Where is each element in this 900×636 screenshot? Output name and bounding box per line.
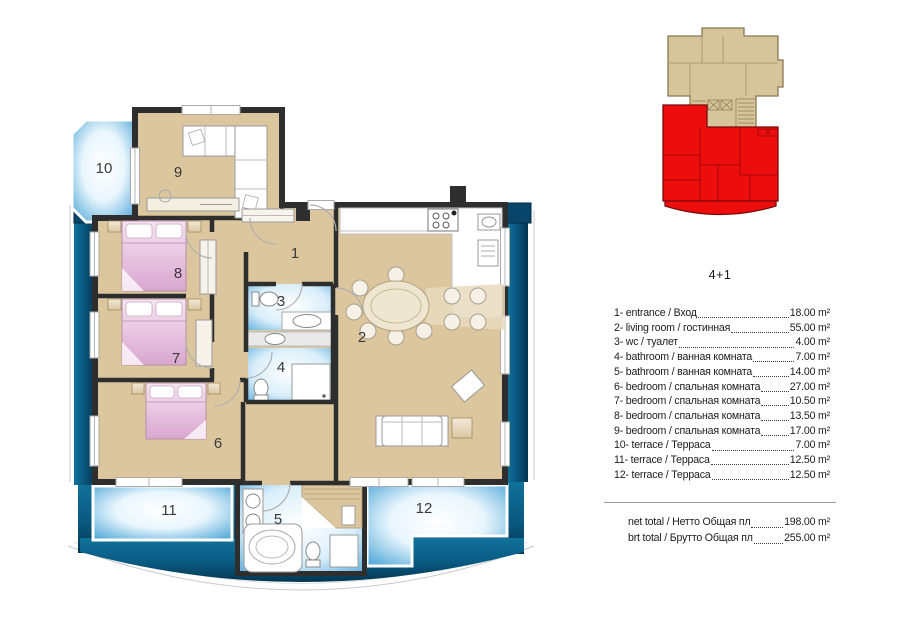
nightstand-icon <box>132 383 144 394</box>
legend-divider <box>604 502 836 503</box>
legend-label: 11- terrace / Терраса <box>614 453 710 468</box>
room-number-11: 11 <box>161 502 177 519</box>
sink-icon <box>265 334 285 345</box>
legend-area: 55.00 m² <box>790 321 830 336</box>
dot-leader <box>761 391 788 392</box>
room-number-8: 8 <box>174 265 182 282</box>
legend-label: 10- terrace / Терраса <box>614 438 711 453</box>
room-number-7: 7 <box>172 350 180 367</box>
legend-label: 3- wc / туалет <box>614 335 678 350</box>
legend-row: 1- entrance / Вход18.00 m² <box>614 306 830 321</box>
total-area: 255.00 m² <box>784 531 830 547</box>
legend-area: 7.00 m² <box>795 350 830 365</box>
room-number-5: 5 <box>274 511 282 528</box>
chair-icon <box>352 280 368 296</box>
bathroom-5 <box>240 485 362 572</box>
legend-area: 27.00 m² <box>790 380 830 395</box>
fridge-icon <box>478 240 498 266</box>
legend-row: 10- terrace / Терраса7.00 m² <box>614 438 830 453</box>
nightstand-icon <box>108 221 121 232</box>
floorplan-page: 1 2 3 4 5 6 7 8 9 10 11 12 <box>0 0 900 636</box>
nightstand-icon <box>108 299 121 310</box>
chair-icon <box>470 314 486 330</box>
legend-area: 7.00 m² <box>795 438 830 453</box>
legend-row: 11- terrace / Терраса12.50 m² <box>614 453 830 468</box>
bedroom-7 <box>108 299 212 366</box>
chair-icon <box>444 288 460 304</box>
wc-3 <box>248 284 333 330</box>
dot-leader <box>761 435 788 436</box>
bathroom-4 <box>248 348 333 402</box>
chair-icon <box>416 323 432 339</box>
shower-icon <box>330 535 358 567</box>
room-number-1: 1 <box>291 245 299 262</box>
nightstand-icon <box>188 299 201 310</box>
toilet-icon <box>254 379 268 397</box>
building-keyplan <box>630 15 830 225</box>
legend-row: 8- bedroom / спальная комната13.50 m² <box>614 409 830 424</box>
legend-label: 4- bathroom / ванная комната <box>614 350 752 365</box>
dot-leader <box>761 405 788 406</box>
room-number-4: 4 <box>277 359 285 376</box>
dot-leader <box>761 420 788 421</box>
legend-area: 10.50 m² <box>790 394 830 409</box>
legend-label: 12- terrace / Терраса <box>614 468 711 483</box>
legend-row: 7- bedroom / спальная комната10.50 m² <box>614 394 830 409</box>
dot-leader <box>712 479 789 480</box>
vanity-strip <box>248 332 333 346</box>
toilet-icon <box>306 542 320 560</box>
cushion-icon <box>242 195 258 211</box>
legend-row: 12- terrace / Терраса12.50 m² <box>614 468 830 483</box>
legend-area: 4.00 m² <box>795 335 830 350</box>
total-area: 198.00 m² <box>784 515 830 531</box>
nightstand-icon <box>208 383 220 394</box>
room-number-10: 10 <box>96 160 113 177</box>
room-number-6: 6 <box>214 435 222 452</box>
room-number-9: 9 <box>174 164 182 181</box>
legend-row: 3- wc / туалет4.00 m² <box>614 335 830 350</box>
wardrobe-icon <box>196 320 212 366</box>
kitchen-sink-icon <box>478 214 500 230</box>
legend-label: 8- bedroom / спальная комната <box>614 409 760 424</box>
legend-label: 1- entrance / Вход <box>614 306 697 321</box>
legend-area: 12.50 m² <box>790 453 830 468</box>
legend-row: 6- bedroom / спальная комната27.00 m² <box>614 380 830 395</box>
legend-area: 17.00 m² <box>790 424 830 439</box>
total-label: brt total / Брутто Общая пл <box>628 531 753 547</box>
dot-leader <box>753 361 794 362</box>
room-number-2: 2 <box>358 329 366 346</box>
dot-leader <box>751 527 783 528</box>
room-number-12: 12 <box>416 500 433 517</box>
legend-label: 2- living room / гостинная <box>614 321 730 336</box>
totals-block: net total / Нетто Общая пл198.00 m² brt … <box>600 515 840 546</box>
legend-label: 7- bedroom / спальная комната <box>614 394 760 409</box>
dot-leader <box>712 450 795 451</box>
bathtub-icon <box>244 524 302 572</box>
dot-leader <box>679 347 795 348</box>
legend-area: 12.50 m² <box>790 468 830 483</box>
legend-area: 18.00 m² <box>790 306 830 321</box>
plan-type-label: 4+1 <box>600 268 840 282</box>
legend-area: 13.50 m² <box>790 409 830 424</box>
toilet-icon <box>260 292 278 306</box>
chair-icon <box>346 304 362 320</box>
legend-area: 14.00 m² <box>790 365 830 380</box>
dot-leader <box>753 376 789 377</box>
nightstand-icon <box>188 221 201 232</box>
dot-leader <box>711 464 789 465</box>
bedroom-8 <box>108 221 216 294</box>
floorplan-drawing: 1 2 3 4 5 6 7 8 9 10 11 12 <box>0 0 570 636</box>
legend-label: 9- bedroom / спальная комната <box>614 424 760 439</box>
legend-row: 9- bedroom / спальная комната17.00 m² <box>614 424 830 439</box>
room-legend: 1- entrance / Вход18.00 m² 2- living roo… <box>600 306 840 482</box>
sink-icon <box>293 315 321 328</box>
dot-leader <box>754 543 783 544</box>
room-number-3: 3 <box>277 293 285 310</box>
legend-row: 4- bathroom / ванная комната7.00 m² <box>614 350 830 365</box>
legend-label: 5- bathroom / ванная комната <box>614 365 752 380</box>
sofa-icon <box>382 416 442 446</box>
chimney-block <box>450 186 466 206</box>
coffee-table-icon <box>452 418 472 438</box>
legend-label: 6- bedroom / спальная комната <box>614 380 760 395</box>
brt-total-row: brt total / Брутто Общая пл255.00 m² <box>628 531 830 547</box>
dot-leader <box>731 332 789 333</box>
legend-panel: 4+1 1- entrance / Вход18.00 m² 2- living… <box>600 268 840 546</box>
legend-row: 2- living room / гостинная55.00 m² <box>614 321 830 336</box>
legend-row: 5- bathroom / ванная комната14.00 m² <box>614 365 830 380</box>
chair-icon <box>444 314 460 330</box>
net-total-row: net total / Нетто Общая пл198.00 m² <box>628 515 830 531</box>
dot-leader <box>698 317 789 318</box>
total-label: net total / Нетто Общая пл <box>628 515 750 531</box>
chair-icon <box>470 288 486 304</box>
